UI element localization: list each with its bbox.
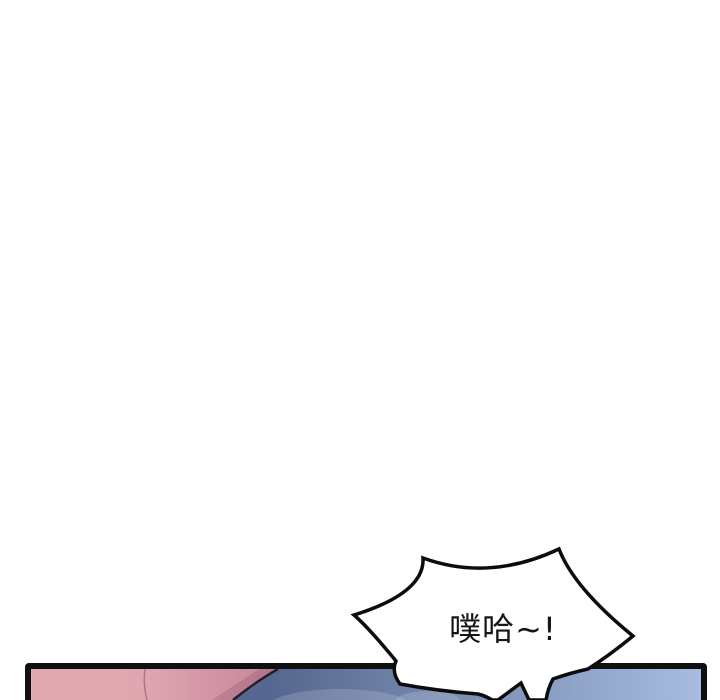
comic-page: 噗哈~!: [0, 0, 720, 700]
comic-artwork: 噗哈~!: [0, 0, 720, 700]
speech-bubble-text: 噗哈~!: [449, 610, 557, 648]
